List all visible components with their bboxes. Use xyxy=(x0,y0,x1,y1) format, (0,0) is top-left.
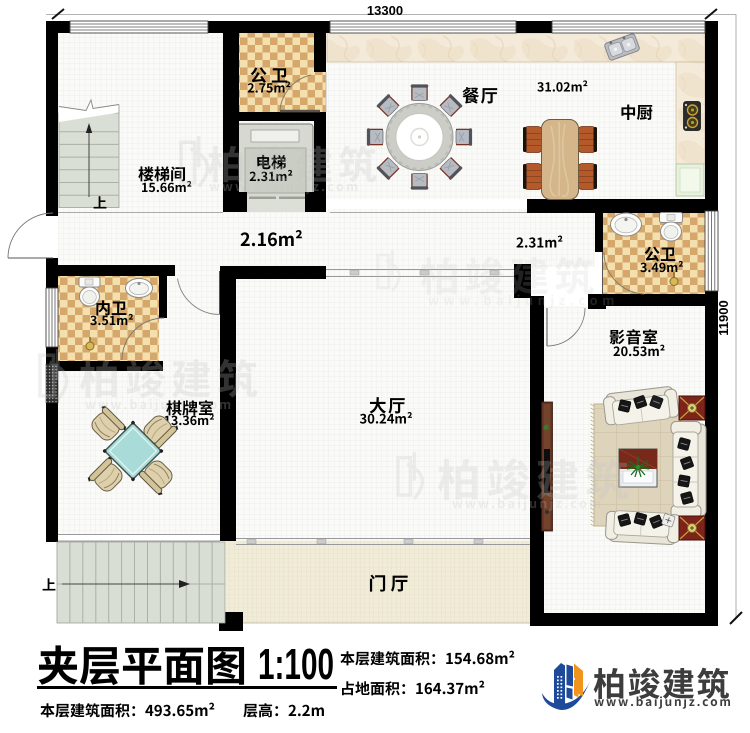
svg-text:11900: 11900 xyxy=(716,300,731,335)
svg-text:1:100: 1:100 xyxy=(258,640,334,689)
svg-text:13300: 13300 xyxy=(367,3,403,18)
